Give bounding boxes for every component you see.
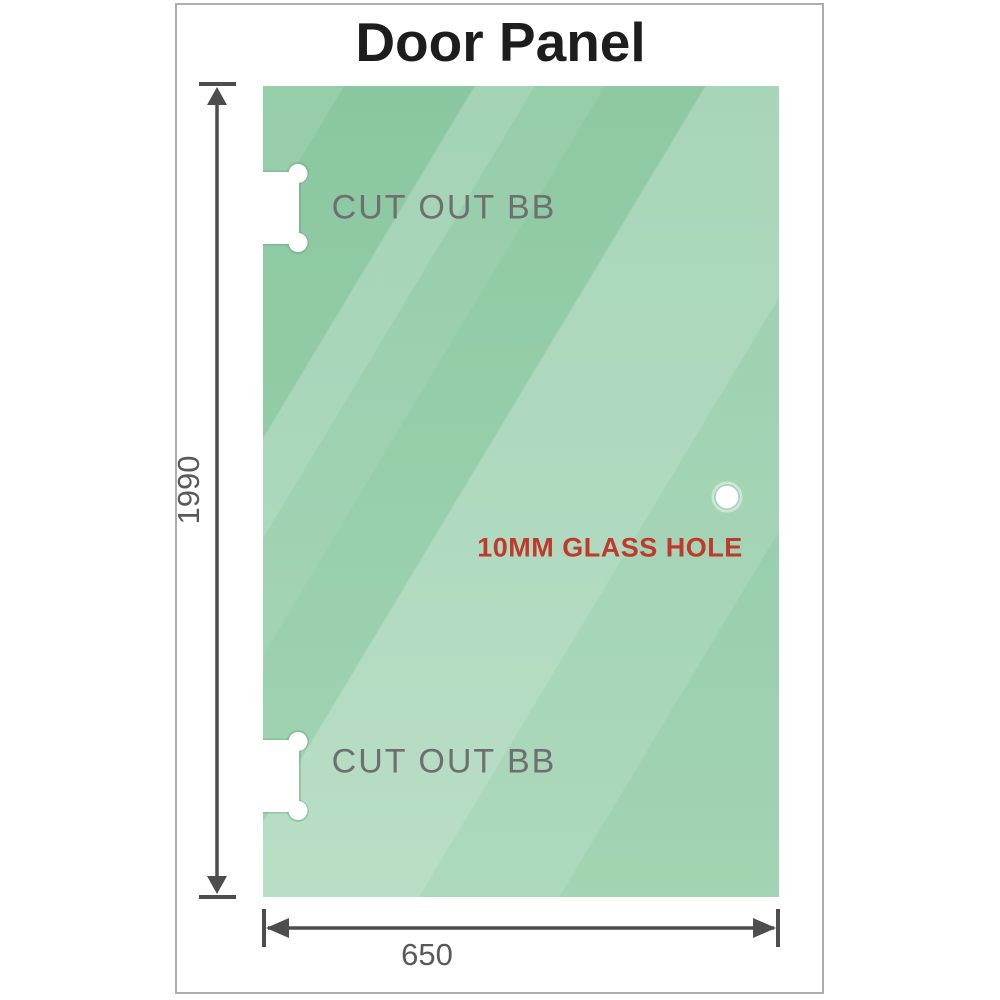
width-dimension-value: 650	[401, 937, 453, 973]
height-dimension-value: 1990	[171, 456, 207, 525]
cutout-label-upper: CUT OUT BB	[332, 189, 557, 228]
page-title: Door Panel	[175, 10, 826, 74]
cutout-label-lower: CUT OUT BB	[332, 743, 557, 782]
glass-hole-label: 10MM GLASS HOLE	[477, 533, 743, 564]
diagram-stage: Door Panel	[0, 0, 1000, 1000]
